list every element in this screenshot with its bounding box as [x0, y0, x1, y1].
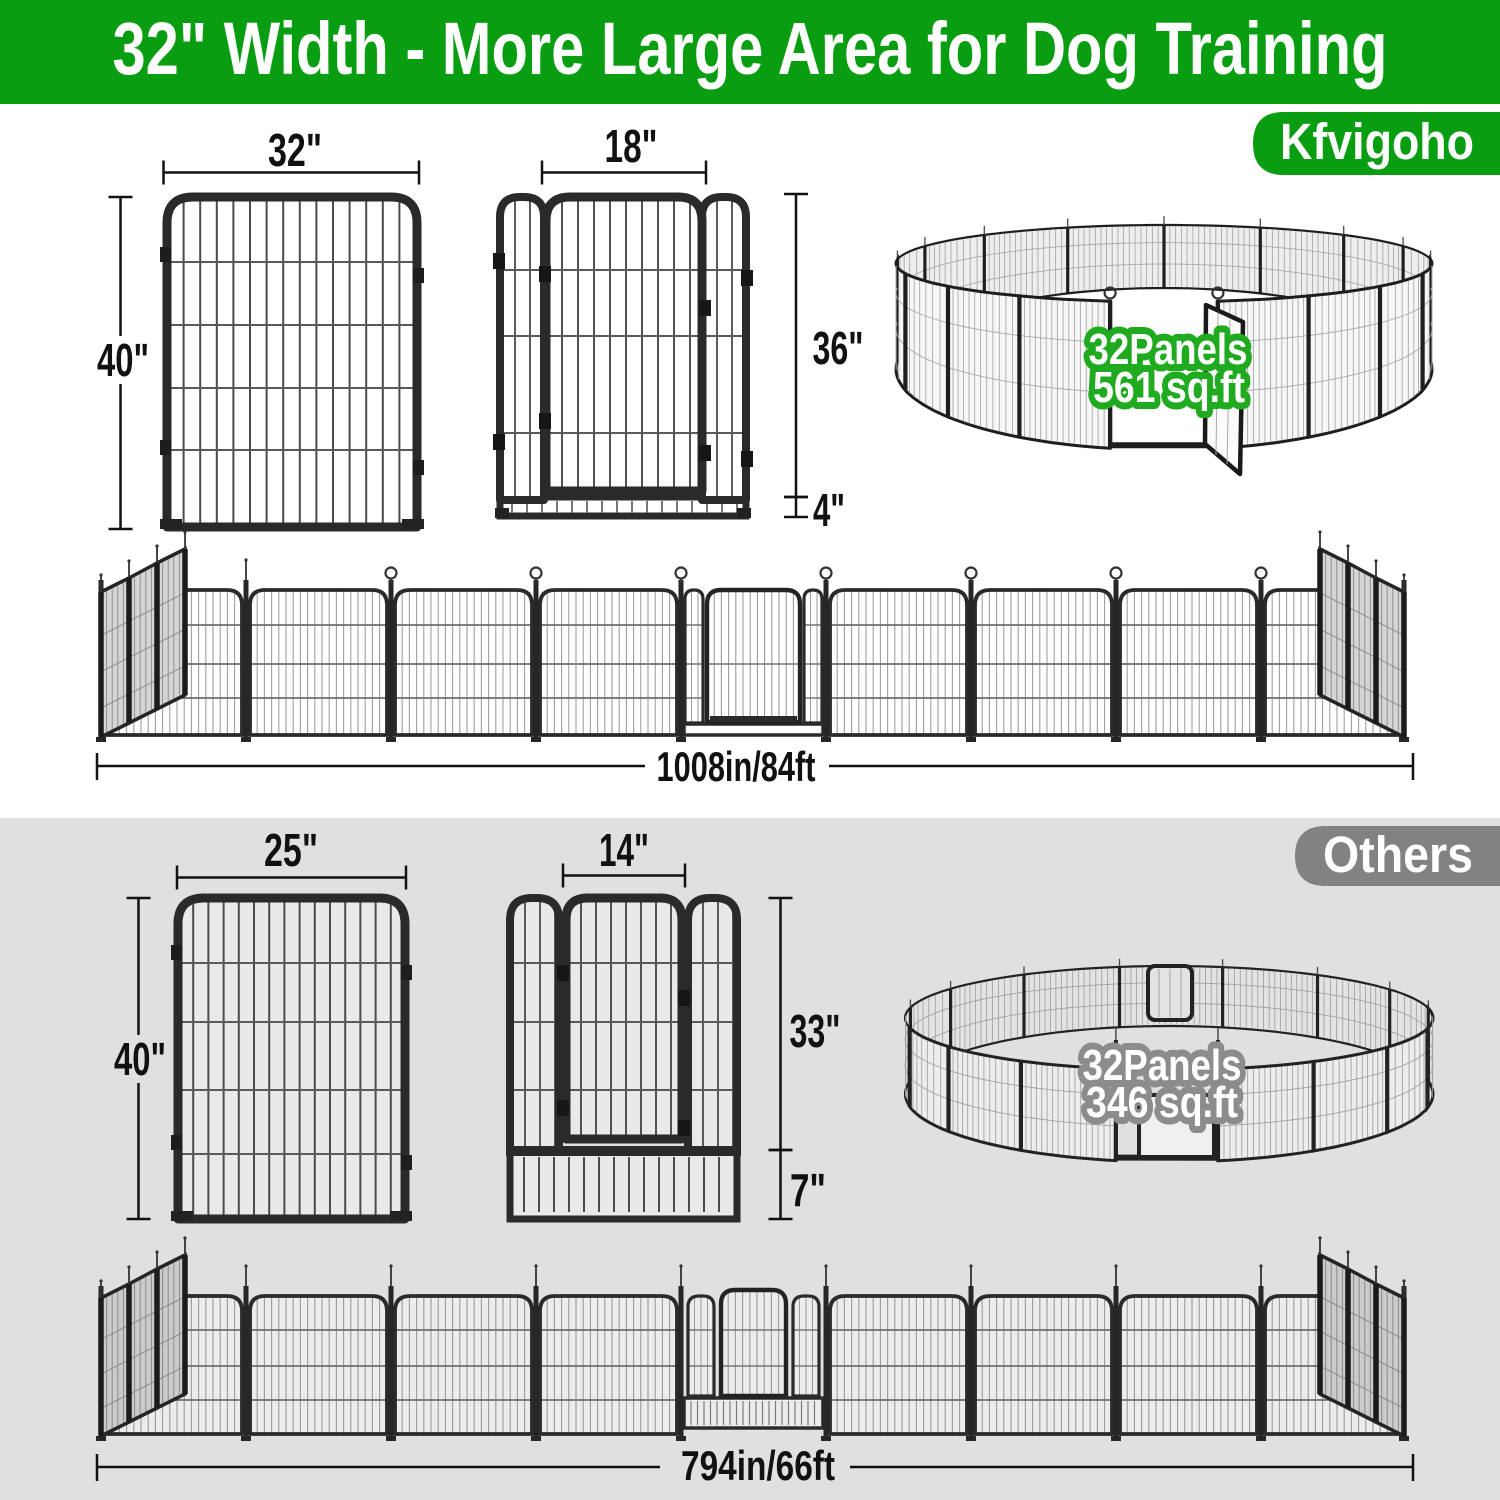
svg-text:32": 32" — [268, 124, 322, 176]
svg-text:346 sq.ft: 346 sq.ft — [1086, 1078, 1238, 1127]
svg-text:14": 14" — [599, 824, 649, 876]
svg-text:794in/66ft: 794in/66ft — [681, 1442, 835, 1489]
svg-text:36": 36" — [813, 322, 864, 374]
svg-text:7": 7" — [790, 1164, 826, 1216]
svg-text:32" Width - More Large Area fo: 32" Width - More Large Area for Dog Trai… — [113, 7, 1388, 90]
svg-text:25": 25" — [264, 824, 318, 876]
svg-text:561 sq.ft: 561 sq.ft — [1093, 363, 1245, 412]
svg-text:Others: Others — [1323, 826, 1473, 883]
svg-text:Kfvigoho: Kfvigoho — [1280, 113, 1474, 170]
svg-text:40": 40" — [97, 334, 149, 386]
svg-text:40": 40" — [114, 1033, 166, 1085]
svg-text:4": 4" — [813, 484, 845, 536]
svg-text:33": 33" — [790, 1005, 841, 1057]
svg-text:18": 18" — [605, 120, 658, 172]
svg-text:1008in/84ft: 1008in/84ft — [657, 743, 816, 790]
